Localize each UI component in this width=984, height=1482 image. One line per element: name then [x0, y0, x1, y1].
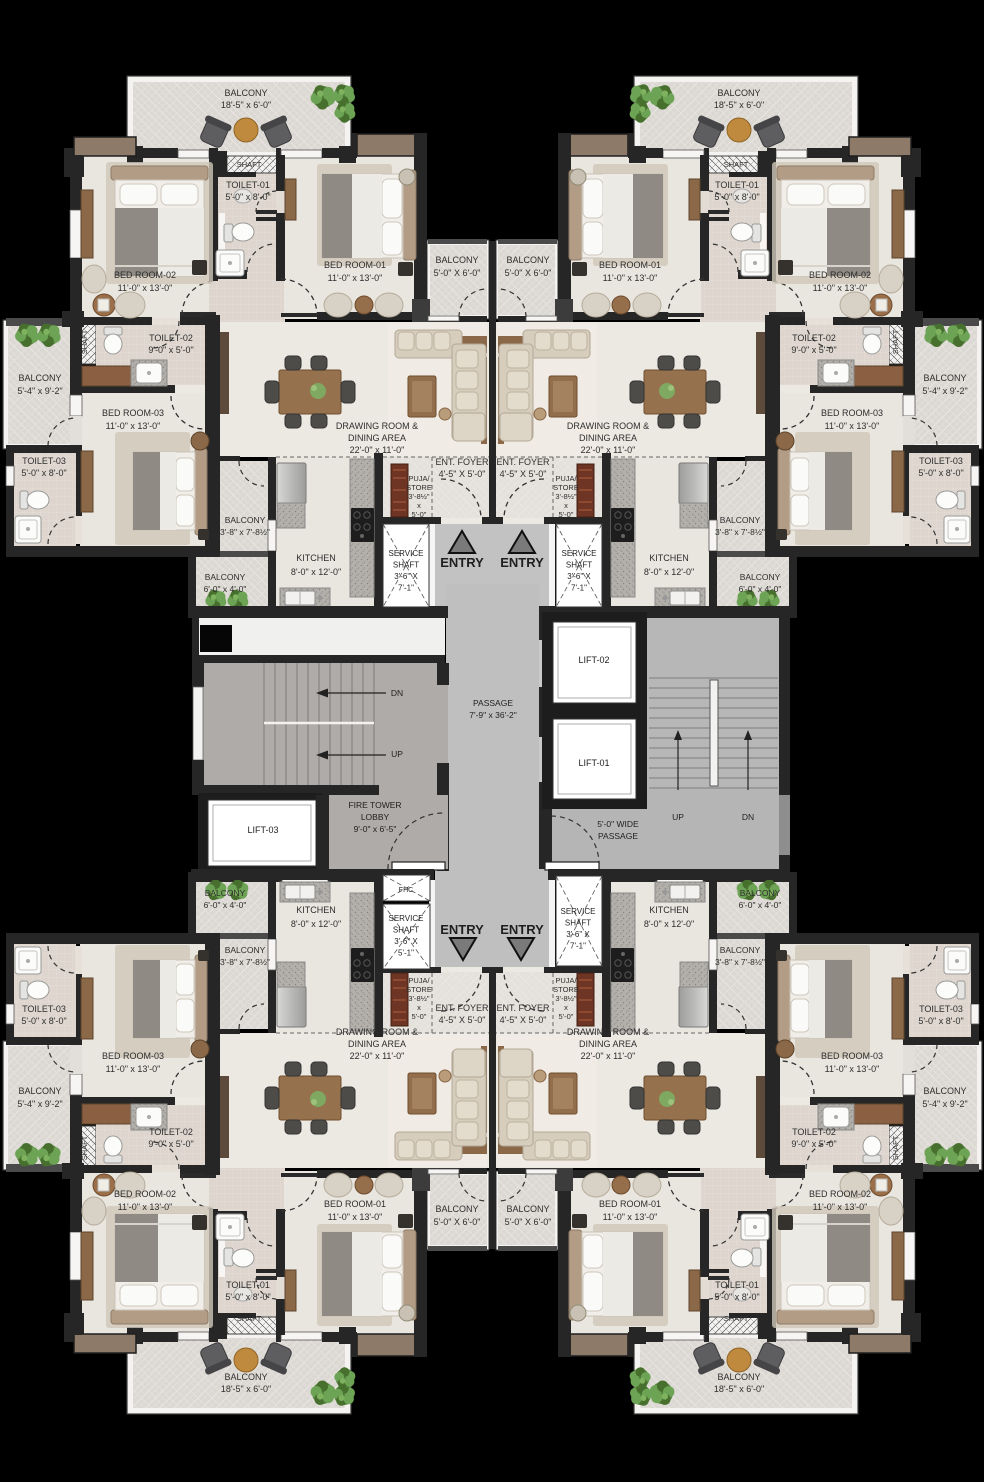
- svg-text:KITCHEN: KITCHEN: [649, 905, 689, 915]
- svg-text:18'-5" x 6'-0": 18'-5" x 6'-0": [221, 100, 271, 110]
- svg-text:DINING AREA: DINING AREA: [348, 1039, 406, 1049]
- svg-text:5'-0" X 6'-0": 5'-0" X 6'-0": [505, 268, 552, 278]
- svg-text:PASSAGE: PASSAGE: [598, 831, 638, 841]
- svg-text:BALCONY: BALCONY: [720, 945, 761, 955]
- svg-text:SHAFT: SHAFT: [891, 1135, 900, 1160]
- svg-text:9'-0" x 5'-0": 9'-0" x 5'-0": [791, 1139, 836, 1149]
- svg-text:5'-4" x 9'-2": 5'-4" x 9'-2": [922, 1099, 967, 1109]
- svg-text:SHAFT: SHAFT: [393, 561, 419, 570]
- svg-text:11'-0" x 13'-0": 11'-0" x 13'-0": [106, 1064, 161, 1074]
- svg-text:TOILET-01: TOILET-01: [715, 180, 759, 190]
- svg-text:SHAFT: SHAFT: [724, 160, 749, 169]
- svg-text:5'-0" X 6'-0": 5'-0" X 6'-0": [434, 1217, 481, 1227]
- svg-text:5'-0" x 8'-0": 5'-0" x 8'-0": [918, 468, 963, 478]
- svg-text:BALCONY: BALCONY: [740, 888, 781, 898]
- svg-text:STORE: STORE: [553, 985, 579, 994]
- svg-text:SERVICE: SERVICE: [562, 549, 597, 558]
- svg-text:4'-5" X 5'-0": 4'-5" X 5'-0": [439, 1015, 486, 1025]
- svg-text:5'-1": 5'-1": [398, 949, 414, 958]
- svg-text:BALCONY: BALCONY: [225, 515, 266, 525]
- svg-text:9'-0" x 5'-0": 9'-0" x 5'-0": [148, 1139, 193, 1149]
- svg-text:KITCHEN: KITCHEN: [649, 553, 689, 563]
- svg-text:5'-0" x 8'-0": 5'-0" x 8'-0": [225, 192, 270, 202]
- svg-text:7'-1": 7'-1": [570, 942, 586, 951]
- svg-text:UP: UP: [391, 749, 403, 759]
- svg-text:PUJA/: PUJA/: [555, 976, 577, 985]
- svg-text:5'-0" X 6'-0": 5'-0" X 6'-0": [505, 1217, 552, 1227]
- svg-text:4'-5" X 5'-0": 4'-5" X 5'-0": [500, 469, 547, 479]
- svg-text:DN: DN: [742, 812, 754, 822]
- svg-text:SHAFT: SHAFT: [565, 919, 591, 928]
- svg-text:DRAWING ROOM &: DRAWING ROOM &: [336, 421, 418, 431]
- svg-text:SHAFT: SHAFT: [237, 1314, 262, 1323]
- svg-text:DN: DN: [391, 688, 403, 698]
- svg-text:BALCONY: BALCONY: [720, 515, 761, 525]
- svg-text:BALCONY: BALCONY: [435, 1204, 478, 1214]
- svg-text:3'-8½": 3'-8½": [408, 492, 430, 501]
- svg-text:4'-5" X 5'-0": 4'-5" X 5'-0": [500, 1015, 547, 1025]
- svg-text:8'-0" x 12'-0": 8'-0" x 12'-0": [291, 919, 341, 929]
- svg-text:5'-0": 5'-0": [559, 1012, 574, 1021]
- svg-text:5'-0" WIDE: 5'-0" WIDE: [597, 819, 639, 829]
- svg-text:KITCHEN: KITCHEN: [296, 553, 336, 563]
- svg-text:BED ROOM-02: BED ROOM-02: [114, 270, 176, 280]
- svg-text:SHAFT: SHAFT: [891, 329, 900, 354]
- svg-text:TOILET-03: TOILET-03: [22, 456, 66, 466]
- svg-text:11'-0" x 13'-0": 11'-0" x 13'-0": [813, 283, 868, 293]
- svg-text:SHAFT: SHAFT: [724, 1314, 749, 1323]
- svg-text:11'-0" x 13'-0": 11'-0" x 13'-0": [825, 1064, 880, 1074]
- svg-text:5'-4" x 9'-2": 5'-4" x 9'-2": [17, 386, 62, 396]
- svg-text:7'-1": 7'-1": [571, 584, 587, 593]
- svg-text:BALCONY: BALCONY: [205, 572, 246, 582]
- svg-text:3'-8" x 7'-8½": 3'-8" x 7'-8½": [715, 957, 765, 967]
- svg-text:3'-8½": 3'-8½": [555, 994, 577, 1003]
- svg-text:5'-0": 5'-0": [412, 1012, 427, 1021]
- svg-text:TOILET-02: TOILET-02: [149, 1127, 193, 1137]
- svg-text:TOILET-03: TOILET-03: [919, 456, 963, 466]
- svg-text:8'-0" x 12'-0": 8'-0" x 12'-0": [644, 919, 694, 929]
- svg-text:FIRE TOWER: FIRE TOWER: [348, 800, 401, 810]
- svg-text:9'-0" x 6'-5": 9'-0" x 6'-5": [354, 824, 397, 834]
- svg-text:11'-0" x 13'-0": 11'-0" x 13'-0": [825, 421, 880, 431]
- svg-text:DRAWING ROOM &: DRAWING ROOM &: [567, 1027, 649, 1037]
- svg-text:9'-0" x 5'-0": 9'-0" x 5'-0": [148, 345, 193, 355]
- svg-text:BED ROOM-03: BED ROOM-03: [821, 408, 883, 418]
- svg-text:3'-8" x 7'-8½": 3'-8" x 7'-8½": [715, 527, 765, 537]
- svg-text:BALCONY: BALCONY: [717, 1372, 760, 1382]
- svg-text:22'-0" x 11'-0": 22'-0" x 11'-0": [581, 1051, 636, 1061]
- svg-text:LOBBY: LOBBY: [361, 812, 390, 822]
- svg-text:3'-8½": 3'-8½": [555, 492, 577, 501]
- svg-text:TOILET-01: TOILET-01: [226, 180, 270, 190]
- svg-text:STORE: STORE: [406, 483, 432, 492]
- svg-text:4'-5" X 5'-0": 4'-5" X 5'-0": [439, 469, 486, 479]
- svg-text:x: x: [564, 501, 568, 510]
- svg-text:ENT. FOYER: ENT. FOYER: [435, 1003, 489, 1013]
- svg-text:BED ROOM-01: BED ROOM-01: [599, 260, 661, 270]
- svg-text:FHC: FHC: [399, 887, 413, 894]
- svg-text:x: x: [564, 1003, 568, 1012]
- svg-text:5'-0": 5'-0": [559, 510, 574, 519]
- svg-text:6'-0" x 4'-0": 6'-0" x 4'-0": [739, 900, 782, 910]
- svg-text:18'-5" x 6'-0": 18'-5" x 6'-0": [714, 100, 764, 110]
- svg-text:3'-6" X: 3'-6" X: [394, 572, 418, 581]
- svg-text:BED ROOM-01: BED ROOM-01: [324, 1199, 386, 1209]
- svg-text:5'-0" x 8'-0": 5'-0" x 8'-0": [21, 1016, 66, 1026]
- svg-text:BALCONY: BALCONY: [435, 255, 478, 265]
- svg-text:TOILET-01: TOILET-01: [715, 1280, 759, 1290]
- svg-text:22'-0" x 11'-0": 22'-0" x 11'-0": [350, 445, 405, 455]
- svg-text:BED ROOM-03: BED ROOM-03: [821, 1051, 883, 1061]
- svg-text:LIFT-01: LIFT-01: [578, 758, 609, 768]
- svg-text:KITCHEN: KITCHEN: [296, 905, 336, 915]
- svg-text:11'-0" x 13'-0": 11'-0" x 13'-0": [118, 1202, 173, 1212]
- svg-text:9'-0" x 5'-0": 9'-0" x 5'-0": [791, 345, 836, 355]
- svg-text:LIFT-03: LIFT-03: [247, 825, 278, 835]
- svg-text:BED ROOM-03: BED ROOM-03: [102, 1051, 164, 1061]
- svg-text:5'-4" x 9'-2": 5'-4" x 9'-2": [17, 1099, 62, 1109]
- svg-text:ENTRY: ENTRY: [440, 922, 484, 937]
- svg-text:11'-0" x 13'-0": 11'-0" x 13'-0": [328, 1212, 383, 1222]
- svg-text:5'-0" X 6'-0": 5'-0" X 6'-0": [434, 268, 481, 278]
- svg-text:SERVICE: SERVICE: [389, 549, 424, 558]
- svg-text:11'-0" x 13'-0": 11'-0" x 13'-0": [106, 421, 161, 431]
- svg-text:BED ROOM-01: BED ROOM-01: [324, 260, 386, 270]
- svg-text:BALCONY: BALCONY: [506, 255, 549, 265]
- svg-text:3'-6" X: 3'-6" X: [567, 572, 591, 581]
- svg-text:DINING AREA: DINING AREA: [579, 433, 637, 443]
- svg-text:SHAFT: SHAFT: [80, 329, 89, 354]
- svg-text:BALCONY: BALCONY: [506, 1204, 549, 1214]
- svg-text:BALCONY: BALCONY: [18, 373, 61, 383]
- svg-text:18'-5" x 6'-0": 18'-5" x 6'-0": [221, 1384, 271, 1394]
- svg-text:BALCONY: BALCONY: [717, 88, 760, 98]
- svg-text:11'-0" x 13'-0": 11'-0" x 13'-0": [603, 273, 658, 283]
- svg-text:TOILET-02: TOILET-02: [792, 333, 836, 343]
- svg-text:3'-8" x 7'-8½": 3'-8" x 7'-8½": [220, 957, 270, 967]
- svg-text:DINING AREA: DINING AREA: [579, 1039, 637, 1049]
- svg-text:8'-0" x 12'-0": 8'-0" x 12'-0": [644, 567, 694, 577]
- svg-text:BED ROOM-02: BED ROOM-02: [809, 1189, 871, 1199]
- svg-text:ENT. FOYER: ENT. FOYER: [435, 457, 489, 467]
- svg-text:BED ROOM-01: BED ROOM-01: [599, 1199, 661, 1209]
- svg-text:BALCONY: BALCONY: [923, 373, 966, 383]
- svg-text:LIFT-02: LIFT-02: [578, 655, 609, 665]
- svg-text:11'-0" x 13'-0": 11'-0" x 13'-0": [603, 1212, 658, 1222]
- svg-text:TOILET-03: TOILET-03: [22, 1004, 66, 1014]
- svg-text:22'-0" x 11'-0": 22'-0" x 11'-0": [581, 445, 636, 455]
- svg-text:SHAFT: SHAFT: [393, 926, 419, 935]
- svg-text:5'-0" x 8'-0": 5'-0" x 8'-0": [225, 1292, 270, 1302]
- svg-text:ENTRY: ENTRY: [440, 555, 484, 570]
- svg-text:STORE: STORE: [553, 483, 579, 492]
- svg-text:BALCONY: BALCONY: [205, 888, 246, 898]
- svg-text:8'-0" x 12'-0": 8'-0" x 12'-0": [291, 567, 341, 577]
- svg-text:PUJA/: PUJA/: [555, 474, 577, 483]
- svg-text:TOILET-02: TOILET-02: [149, 333, 193, 343]
- svg-text:3'-6" X: 3'-6" X: [566, 930, 590, 939]
- svg-text:3'-6" X: 3'-6" X: [394, 937, 418, 946]
- svg-text:6'-0" x 4'-0": 6'-0" x 4'-0": [204, 584, 247, 594]
- svg-text:DRAWING ROOM &: DRAWING ROOM &: [567, 421, 649, 431]
- svg-text:5'-0": 5'-0": [412, 510, 427, 519]
- svg-text:ENT. FOYER: ENT. FOYER: [496, 1003, 550, 1013]
- svg-text:PUJA/: PUJA/: [408, 976, 430, 985]
- svg-text:BALCONY: BALCONY: [18, 1086, 61, 1096]
- svg-text:BED ROOM-02: BED ROOM-02: [114, 1189, 176, 1199]
- svg-text:BALCONY: BALCONY: [225, 945, 266, 955]
- svg-text:STORE: STORE: [406, 985, 432, 994]
- svg-text:SHAFT: SHAFT: [237, 160, 262, 169]
- svg-text:5'-0" x 8'-0": 5'-0" x 8'-0": [714, 192, 759, 202]
- svg-text:BED ROOM-03: BED ROOM-03: [102, 408, 164, 418]
- svg-text:SERVICE: SERVICE: [389, 914, 424, 923]
- svg-text:BALCONY: BALCONY: [224, 1372, 267, 1382]
- svg-text:TOILET-02: TOILET-02: [792, 1127, 836, 1137]
- svg-text:BALCONY: BALCONY: [740, 572, 781, 582]
- svg-text:BALCONY: BALCONY: [923, 1086, 966, 1096]
- svg-text:11'-0" x 13'-0": 11'-0" x 13'-0": [118, 283, 173, 293]
- svg-text:ENT. FOYER: ENT. FOYER: [496, 457, 550, 467]
- svg-text:DINING AREA: DINING AREA: [348, 433, 406, 443]
- svg-text:5'-0" x 8'-0": 5'-0" x 8'-0": [21, 468, 66, 478]
- svg-text:PUJA/: PUJA/: [408, 474, 430, 483]
- svg-text:SHAFT: SHAFT: [566, 561, 592, 570]
- svg-text:DRAWING ROOM &: DRAWING ROOM &: [336, 1027, 418, 1037]
- svg-text:ENTRY: ENTRY: [500, 922, 544, 937]
- svg-text:PASSAGE: PASSAGE: [473, 698, 513, 708]
- svg-text:x: x: [417, 1003, 421, 1012]
- svg-text:TOILET-01: TOILET-01: [226, 1280, 270, 1290]
- svg-text:SERVICE: SERVICE: [561, 907, 596, 916]
- svg-text:7'-9" x 36'-2": 7'-9" x 36'-2": [469, 710, 517, 720]
- svg-text:7'-1": 7'-1": [398, 584, 414, 593]
- svg-text:22'-0" x 11'-0": 22'-0" x 11'-0": [350, 1051, 405, 1061]
- svg-text:UP: UP: [672, 812, 684, 822]
- svg-text:TOILET-03: TOILET-03: [919, 1004, 963, 1014]
- svg-text:11'-0" x 13'-0": 11'-0" x 13'-0": [813, 1202, 868, 1212]
- svg-text:BED ROOM-02: BED ROOM-02: [809, 270, 871, 280]
- svg-text:3'-8" x 7'-8½": 3'-8" x 7'-8½": [220, 527, 270, 537]
- svg-text:SHAFT: SHAFT: [80, 1135, 89, 1160]
- svg-text:18'-5" x 6'-0": 18'-5" x 6'-0": [714, 1384, 764, 1394]
- svg-text:5'-0" x 8'-0": 5'-0" x 8'-0": [918, 1016, 963, 1026]
- svg-text:ENTRY: ENTRY: [500, 555, 544, 570]
- svg-text:11'-0" x 13'-0": 11'-0" x 13'-0": [328, 273, 383, 283]
- svg-text:6'-0" x 4'-0": 6'-0" x 4'-0": [204, 900, 247, 910]
- svg-text:6'-0" x 4'-0": 6'-0" x 4'-0": [739, 584, 782, 594]
- svg-text:BALCONY: BALCONY: [224, 88, 267, 98]
- svg-text:x: x: [417, 501, 421, 510]
- svg-text:5'-4" x 9'-2": 5'-4" x 9'-2": [922, 386, 967, 396]
- svg-text:5'-0" x 8'-0": 5'-0" x 8'-0": [714, 1292, 759, 1302]
- svg-text:3'-8½": 3'-8½": [408, 994, 430, 1003]
